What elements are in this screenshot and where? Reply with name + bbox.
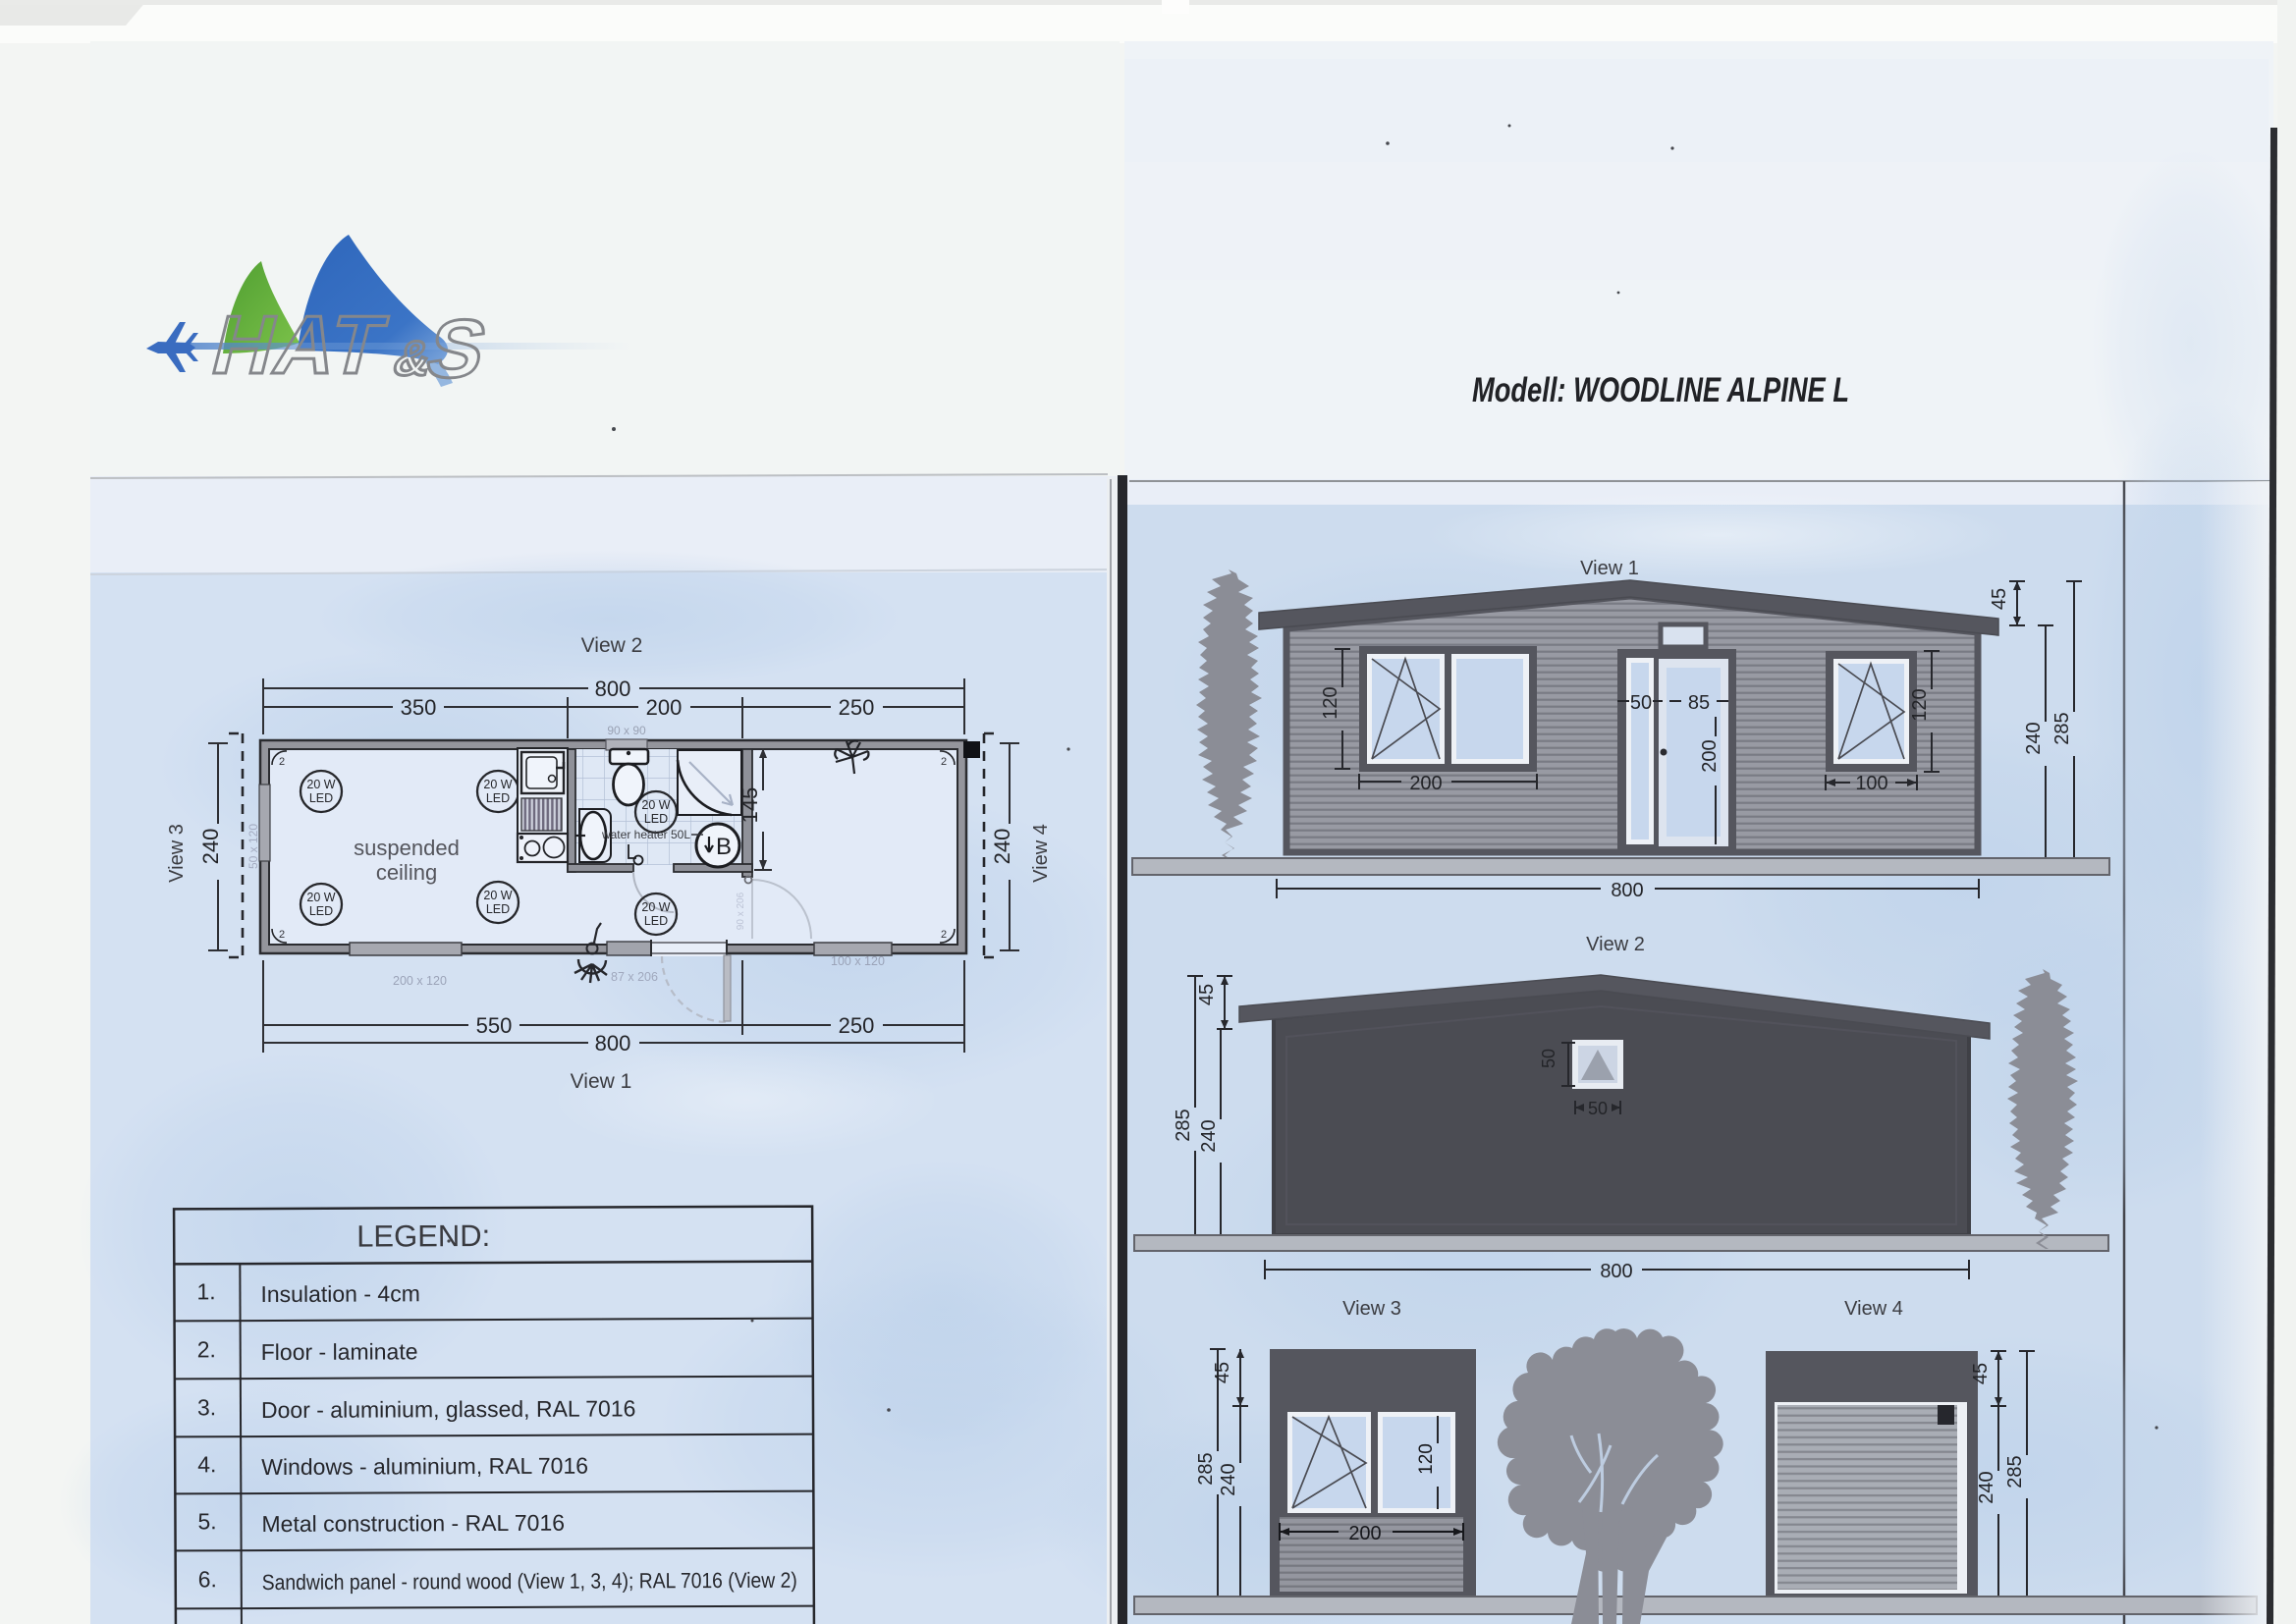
svg-text:350: 350 <box>401 695 437 720</box>
svg-text:200 x 120: 200 x 120 <box>393 974 447 988</box>
svg-text:LED: LED <box>486 791 510 805</box>
svg-text:240: 240 <box>1218 1463 1239 1495</box>
svg-text:View 4: View 4 <box>1030 824 1052 883</box>
svg-text:20 W: 20 W <box>483 889 512 902</box>
svg-text:800: 800 <box>1611 880 1643 901</box>
svg-text:120: 120 <box>1416 1443 1437 1475</box>
svg-text:2: 2 <box>279 929 285 941</box>
svg-text:ceiling: ceiling <box>376 860 437 885</box>
svg-text:285: 285 <box>2051 712 2073 744</box>
svg-text:50: 50 <box>1630 692 1652 714</box>
svg-text:Sandwich panel - round wood (V: Sandwich panel - round wood (View 1, 3, … <box>262 1568 797 1595</box>
svg-text:800: 800 <box>595 677 631 701</box>
svg-text:20 W: 20 W <box>641 798 670 812</box>
svg-text:2: 2 <box>279 756 285 768</box>
svg-text:Insulation - 4cm: Insulation - 4cm <box>260 1280 419 1307</box>
svg-text:20 W: 20 W <box>306 778 335 791</box>
svg-text:85: 85 <box>1688 692 1710 714</box>
svg-text:Metal construction - RAL 7016: Metal construction - RAL 7016 <box>261 1510 565 1537</box>
svg-text:800: 800 <box>1600 1261 1632 1282</box>
svg-text:240: 240 <box>1198 1119 1220 1152</box>
svg-text:2: 2 <box>941 756 947 768</box>
svg-text:LED: LED <box>644 914 668 928</box>
svg-text:6.: 6. <box>198 1566 217 1592</box>
svg-text:LEGEND:: LEGEND: <box>356 1218 490 1254</box>
svg-text:550: 550 <box>476 1013 513 1038</box>
svg-text:View 3: View 3 <box>1342 1298 1401 1320</box>
svg-text:View 2: View 2 <box>1586 934 1645 955</box>
svg-text:4.: 4. <box>197 1451 216 1477</box>
svg-text:50: 50 <box>1539 1049 1558 1068</box>
svg-text:285: 285 <box>2004 1455 2026 1488</box>
svg-text:20 W: 20 W <box>641 900 670 914</box>
svg-text:250: 250 <box>839 1013 875 1038</box>
svg-text:HAT: HAT <box>203 299 396 392</box>
svg-text:90 x 206: 90 x 206 <box>736 892 746 930</box>
svg-text:LED: LED <box>486 902 510 916</box>
svg-text:240: 240 <box>2023 722 2045 754</box>
svg-text:20 W: 20 W <box>483 778 512 791</box>
svg-text:2: 2 <box>941 929 947 941</box>
svg-text:87 x 206: 87 x 206 <box>611 970 658 984</box>
svg-text:LED: LED <box>309 791 333 805</box>
svg-text:20 W: 20 W <box>306 891 335 904</box>
svg-text:120: 120 <box>1909 688 1931 721</box>
svg-text:800: 800 <box>595 1031 631 1056</box>
svg-text:View 4: View 4 <box>1844 1298 1903 1320</box>
svg-text:45: 45 <box>1212 1362 1233 1383</box>
svg-text:LED: LED <box>309 904 333 918</box>
svg-text:45: 45 <box>1989 588 2010 610</box>
svg-text:100 x 120: 100 x 120 <box>831 954 885 968</box>
svg-text:B: B <box>716 834 732 860</box>
svg-text:View 1: View 1 <box>1580 558 1639 579</box>
svg-text:Door - aluminium, glassed, RAL: Door - aluminium, glassed, RAL 7016 <box>261 1395 636 1423</box>
svg-text:LED: LED <box>644 812 668 826</box>
svg-text:5.: 5. <box>197 1508 216 1534</box>
svg-text:1.: 1. <box>196 1278 215 1304</box>
svg-text:2.: 2. <box>197 1336 216 1362</box>
svg-text:120: 120 <box>1320 686 1341 719</box>
svg-text:90 x 90: 90 x 90 <box>607 724 646 737</box>
svg-text:View 1: View 1 <box>571 1070 632 1093</box>
svg-text:240: 240 <box>198 829 223 865</box>
svg-text:50 x 120: 50 x 120 <box>246 824 260 869</box>
svg-text:View 2: View 2 <box>581 634 643 657</box>
svg-text:water heater 50L: water heater 50L <box>601 828 690 841</box>
svg-text:Floor - laminate: Floor - laminate <box>261 1338 418 1365</box>
svg-text:200: 200 <box>1348 1523 1381 1544</box>
svg-text:45: 45 <box>1970 1363 1992 1384</box>
svg-text:3.: 3. <box>197 1394 216 1420</box>
svg-text:200: 200 <box>1409 773 1442 794</box>
svg-text:Windows - aluminium, RAL 7016: Windows - aluminium, RAL 7016 <box>261 1453 588 1480</box>
svg-text:240: 240 <box>1976 1471 1997 1503</box>
svg-text:200: 200 <box>1699 739 1721 772</box>
svg-text:145: 145 <box>738 787 762 824</box>
svg-text:240: 240 <box>990 829 1014 865</box>
svg-text:50: 50 <box>1588 1099 1608 1118</box>
svg-text:Modell: WOODLINE ALPINE L: Modell: WOODLINE ALPINE L <box>1472 371 1849 409</box>
svg-text:100: 100 <box>1855 773 1887 794</box>
svg-text:250: 250 <box>839 695 875 720</box>
svg-text:suspended: suspended <box>354 836 460 860</box>
svg-text:45: 45 <box>1196 984 1218 1005</box>
svg-text:200: 200 <box>646 695 683 720</box>
svg-text:285: 285 <box>1195 1452 1217 1485</box>
svg-text:285: 285 <box>1173 1109 1194 1141</box>
svg-text:View 3: View 3 <box>166 824 188 883</box>
